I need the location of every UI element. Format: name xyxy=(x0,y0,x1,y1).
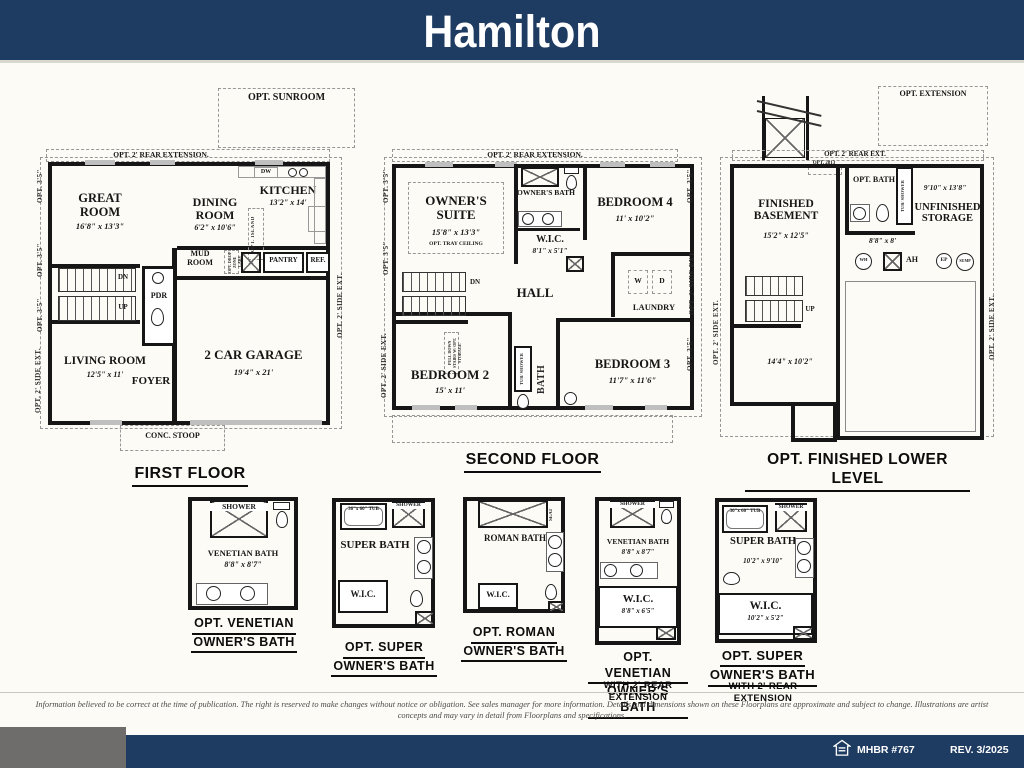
sf-dn-label: DN xyxy=(464,279,486,287)
footer-divider xyxy=(0,692,1024,693)
sf-wic-label: W.I.C. xyxy=(515,235,585,246)
sink-icon xyxy=(564,392,577,405)
tub-shower-label: TUB/ SHOWER xyxy=(519,348,524,390)
mud-room-label: MUD ROOM xyxy=(178,250,222,267)
stairs-up xyxy=(745,300,803,322)
sf-side-ext-label: OPT. 2' SIDE EXT. xyxy=(688,235,696,330)
window xyxy=(600,162,625,167)
bath4-wic-dims: 8'8" x 6'5" xyxy=(598,608,678,616)
ah-label: AH xyxy=(902,256,922,265)
toilet-icon xyxy=(661,509,672,524)
wall-segment xyxy=(508,312,512,410)
toilet-icon xyxy=(151,308,164,326)
stairs-down xyxy=(402,272,466,292)
first-floor-caption: FIRST FLOOR xyxy=(125,464,255,487)
ll-rear-ext-label: OPT. 2' REAR EXT. xyxy=(770,151,940,159)
living-room-label: LIVING ROOM xyxy=(50,355,160,367)
opt-island-label: OPT. ISLAND xyxy=(251,210,256,258)
ff-side-ext-label: OPT. 2' SIDE EXT. xyxy=(34,338,42,423)
bath3-caption: OPT. ROMAN OWNER'S BATH xyxy=(455,625,573,662)
window xyxy=(412,405,440,410)
up-label: UP xyxy=(112,304,134,312)
bedroom3-dims: 11'7" x 11'6" xyxy=(580,376,685,385)
bedroom3-label: BEDROOM 3 xyxy=(580,358,685,372)
garage-label: 2 CAR GARAGE xyxy=(196,348,311,362)
bath5-wic-dims: 10'2" x 5'2" xyxy=(718,615,813,623)
bath2-wic-label: W.I.C. xyxy=(338,590,388,600)
wall-segment xyxy=(845,164,849,234)
disclaimer-text: Information believed to be correct at th… xyxy=(20,699,1004,721)
toilet-icon xyxy=(545,584,557,600)
closet xyxy=(793,626,814,640)
bath-label: BATH xyxy=(536,352,547,407)
bath1-caption: OPT. VENETIAN OWNER'S BATH xyxy=(188,616,300,653)
kitchen-sink-icon xyxy=(299,168,308,177)
toilet-icon xyxy=(876,204,889,222)
sf-rear-ext-label: OPT. 2' REAR EXTENSION. xyxy=(430,151,640,159)
mech-dims: 8'8" x 8' xyxy=(855,237,910,245)
mhbr-number: MHBR #767 xyxy=(857,744,915,756)
bath3-seat-label: SEAT xyxy=(549,503,554,527)
bath2-tub-label: 36"x 60" TUB xyxy=(342,507,385,512)
sf-opt35-label: OPT. 3'5" xyxy=(382,238,390,278)
window xyxy=(425,162,453,167)
wall-segment xyxy=(392,320,468,324)
pantry-label: PANTRY xyxy=(263,257,304,265)
stairs xyxy=(745,276,803,296)
washer-label: W xyxy=(628,277,648,285)
conc-stoop-label: CONC. STOOP xyxy=(120,432,225,441)
rec-dims: 14'4" x 10'2" xyxy=(752,358,828,367)
bath5-tub-label: 36"x 60" TUB xyxy=(724,509,766,514)
sink-icon xyxy=(417,540,431,554)
bedroom2-label: BEDROOM 2 xyxy=(400,368,500,382)
owners-bath-label: OWNER'S BATH xyxy=(515,189,577,197)
sink-icon xyxy=(630,564,643,577)
window xyxy=(150,160,175,165)
opt-sunroom-label: OPT. SUNROOM xyxy=(222,93,351,104)
ref-label: REF. xyxy=(306,257,330,265)
finished-basement-dims: 15'2" x 12'5" xyxy=(740,232,832,241)
sink-icon xyxy=(206,586,221,601)
closet xyxy=(415,611,435,626)
bath1-name: VENETIAN BATH xyxy=(200,549,286,558)
wall-segment xyxy=(611,252,694,256)
bath2-shower-label: SHOWER xyxy=(392,503,425,509)
dining-room-label: DINING ROOM xyxy=(178,196,252,222)
bath1-shower-label: SHOWER xyxy=(210,503,268,511)
sink-icon xyxy=(240,586,255,601)
owners-suite-dims: 15'8" x 13'3" xyxy=(412,228,500,237)
sf-side-ext-label: OPT. 2' SIDE EXT. xyxy=(380,320,388,410)
revision-date: REV. 3/2025 xyxy=(950,744,1009,756)
ff-opt35-label: OPT. 3'5" xyxy=(36,240,44,280)
bedroom2-dims: 15' x 11' xyxy=(400,386,500,395)
sink-icon xyxy=(522,213,534,225)
toilet-icon xyxy=(659,501,674,508)
closet xyxy=(241,252,261,273)
window xyxy=(585,405,613,410)
counter xyxy=(238,166,326,178)
closet xyxy=(566,256,584,272)
pdr-label: PDR xyxy=(142,292,176,301)
window xyxy=(455,405,477,410)
dw-label: DW xyxy=(254,169,278,175)
sf-wic-dims: 8'1" x 5'1" xyxy=(515,247,585,255)
toilet-icon xyxy=(564,167,579,174)
wh-label: WH xyxy=(855,258,872,263)
sink-icon xyxy=(542,213,554,225)
bath4-wic-label: W.I.C. xyxy=(598,594,678,606)
tray-ceiling-label: OPT. TRAY CEILING xyxy=(412,242,500,248)
unfinished-storage-label: UNFINISHED STORAGE xyxy=(905,202,990,225)
equal-housing-icon xyxy=(833,739,851,757)
sf-ext-footprint xyxy=(392,415,673,443)
kitchen-sink-icon xyxy=(288,168,297,177)
wall-segment xyxy=(845,231,915,235)
sink-icon xyxy=(417,560,431,574)
bath4-name: VENETIAN BATH xyxy=(598,538,678,546)
garage-dims: 19'4" x 21' xyxy=(196,368,311,377)
closet xyxy=(656,626,676,640)
second-floor-caption: SECOND FLOOR xyxy=(455,450,610,473)
ff-opt35-label: OPT. 3'5" xyxy=(36,295,44,335)
bath5-dims: 10'2" x 9'10" xyxy=(726,558,800,566)
air-handler-icon xyxy=(883,252,902,271)
sf-opt35-label: OPT. 3'5" xyxy=(686,334,694,374)
sink-icon xyxy=(548,553,562,567)
owners-suite-label: OWNER'S SUITE xyxy=(412,194,500,222)
ff-side-ext-label: OPT. 2' SIDE EXT. xyxy=(336,258,344,353)
bath2-caption: OPT. SUPER OWNER'S BATH xyxy=(325,640,443,677)
sink-icon xyxy=(797,541,811,555)
toilet-icon xyxy=(517,394,529,409)
shower xyxy=(521,167,559,187)
window xyxy=(255,160,283,165)
window xyxy=(85,160,115,165)
hall-label: HALL xyxy=(500,286,570,300)
dryer-label: D xyxy=(652,277,672,285)
opt-drop-zone-label: OPT. DROP ZONE CABS xyxy=(227,251,242,273)
finished-basement-label: FINISHED BASEMENT xyxy=(740,198,832,223)
header-band: Hamilton xyxy=(0,0,1024,63)
bath5-wic-label: W.I.C. xyxy=(718,600,813,612)
bath1-dims: 8'8" x 8'7" xyxy=(200,561,286,570)
great-room-label: GREAT ROOM xyxy=(63,192,137,219)
window xyxy=(645,405,667,410)
bedroom4-label: BEDROOM 4 xyxy=(585,196,685,210)
wall-segment xyxy=(556,318,694,322)
dining-room-dims: 6'2" x 10'6" xyxy=(173,224,257,233)
range xyxy=(308,206,326,232)
wall-segment xyxy=(556,318,560,410)
ll-side-ext-label: OPT. 2' SIDE EXT. xyxy=(712,285,720,380)
basement-areaway xyxy=(791,404,837,442)
laundry-label: LAUNDRY xyxy=(614,303,694,312)
sink-icon xyxy=(548,535,562,549)
page-title: Hamilton xyxy=(41,6,983,58)
dn-label: DN xyxy=(112,274,134,282)
bath4-dims: 8'8" x 8'7" xyxy=(598,549,678,557)
brightmls-logo-box: bright ✦ ™ MLS xyxy=(0,727,126,768)
window xyxy=(650,162,675,167)
ll-side-ext-label: OPT. 2' SIDE EXT. xyxy=(988,275,996,380)
floorplan-sheet: Hamilton OPT. SUNROOM OPT. 2' REAR EXTEN… xyxy=(0,0,1024,768)
sink-icon xyxy=(152,272,164,284)
bath5-name: SUPER BATH xyxy=(728,536,798,547)
stairs xyxy=(402,296,466,316)
toilet-icon xyxy=(410,590,423,607)
ff-opt35-label: OPT. 3'5" xyxy=(36,166,44,206)
great-room-dims: 16'8" x 13'3" xyxy=(58,222,142,231)
sink-icon xyxy=(604,564,617,577)
sf-opt35-label: OPT. 3'5" xyxy=(382,166,390,206)
storage-dims: 9'10" x 13'8" xyxy=(912,184,978,192)
wall-segment xyxy=(733,324,801,328)
sink-icon xyxy=(797,559,811,573)
wall-segment xyxy=(514,228,580,231)
toilet-icon xyxy=(273,502,290,510)
ep-label: EP xyxy=(936,258,952,264)
sump-label: SUMP xyxy=(956,259,974,263)
closet xyxy=(548,601,565,613)
wall-segment xyxy=(177,276,330,280)
bath2-name: SUPER BATH xyxy=(340,540,410,552)
bath5-shower-label: SHOWER xyxy=(775,505,807,511)
sink-icon xyxy=(853,207,866,220)
toilet-icon xyxy=(723,572,740,585)
opt-bath-label: OPT. BATH xyxy=(852,176,896,185)
slab-area xyxy=(845,281,976,432)
lower-level-caption: OPT. FINISHED LOWER LEVEL xyxy=(745,450,970,492)
window xyxy=(90,420,122,425)
sf-opt35-label: OPT. 3'5" xyxy=(686,166,694,206)
bath3-wic-label: W.I.C. xyxy=(478,590,518,599)
roman-shower xyxy=(478,500,548,528)
ll-up-label: UP xyxy=(798,306,822,314)
bedroom4-dims: 11' x 10'2" xyxy=(585,214,685,223)
foyer-label: FOYER xyxy=(122,376,180,388)
toilet-icon xyxy=(276,511,288,528)
opt-extension-label: OPT. EXTENSION xyxy=(880,90,986,99)
bath4-shower-label: SHOWER xyxy=(610,502,655,508)
ff-rear-ext-label: OPT. 2' REAR EXTENSION. xyxy=(56,151,266,159)
